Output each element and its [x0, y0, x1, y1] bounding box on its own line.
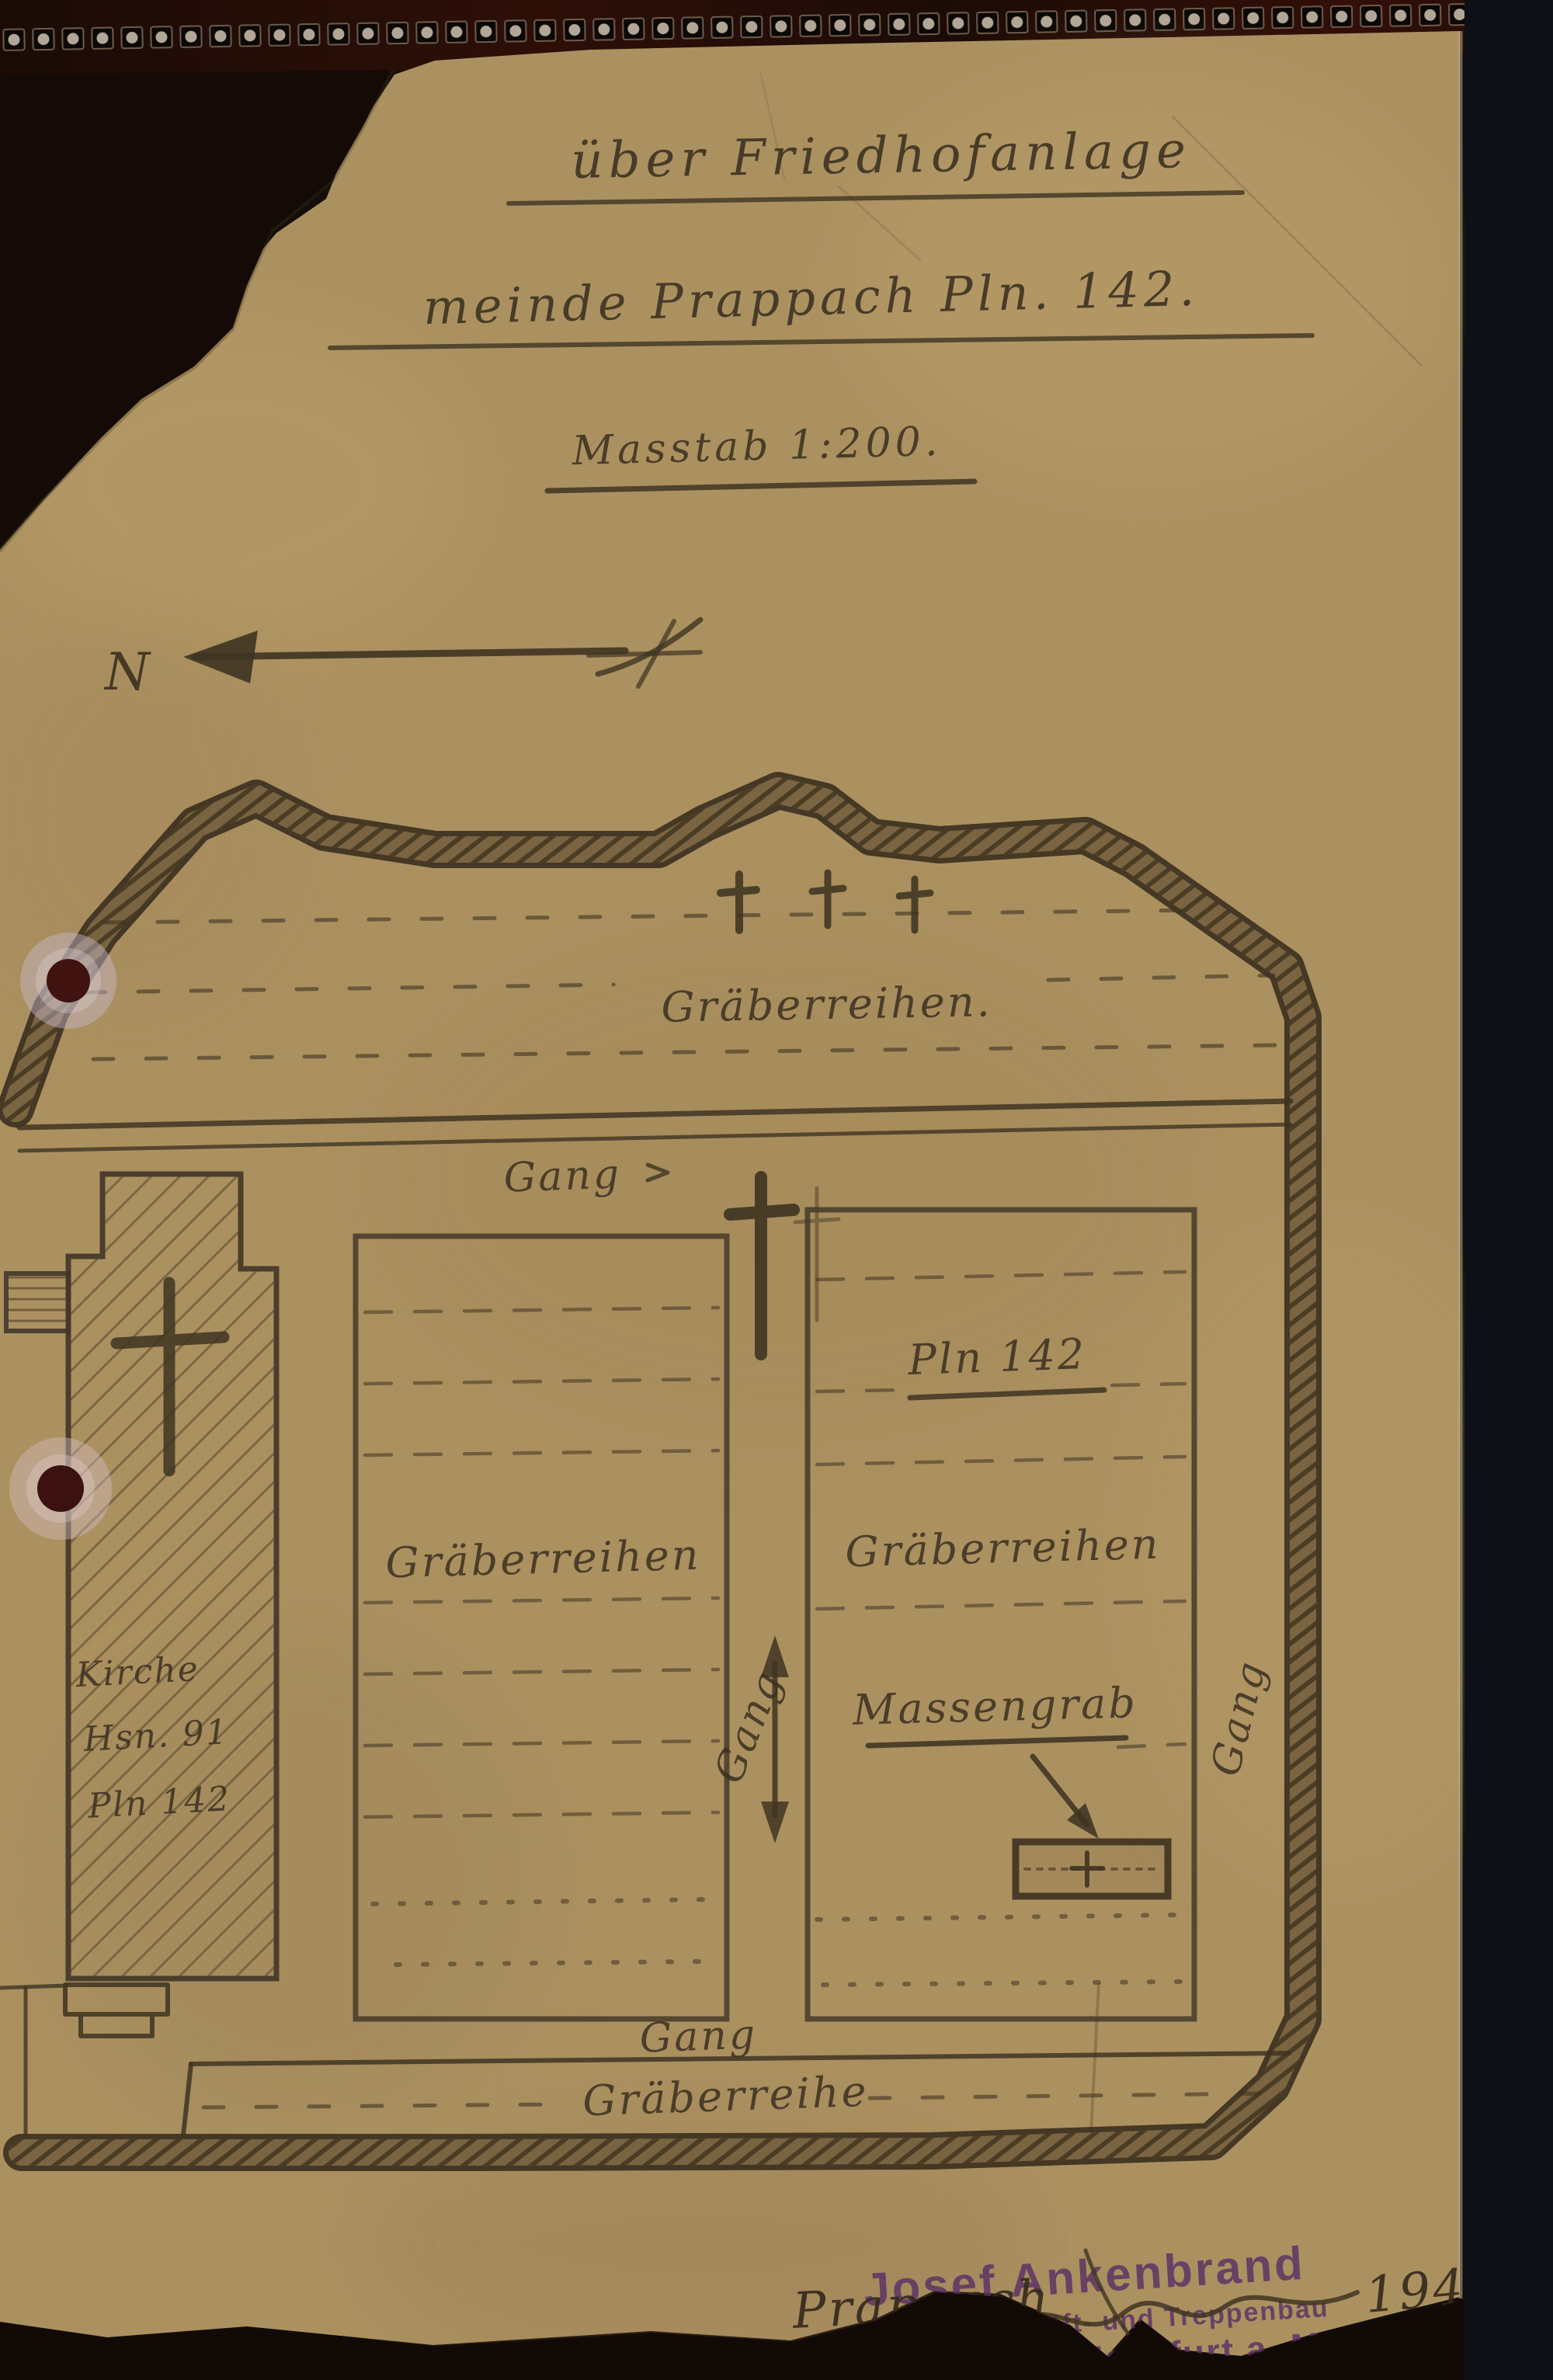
church-plan-no: Pln 142 [86, 1779, 231, 1826]
north-label: N [103, 642, 151, 702]
church-house-no: Hsn. 91 [82, 1712, 230, 1760]
right-block-label: Gräberreihen [845, 1520, 1162, 1577]
scanner-edge-right [1461, 0, 1553, 2380]
north-arrow-feather-2 [589, 652, 700, 655]
gang-bottom-label: Gang [639, 2011, 758, 2062]
church-annex [6, 1273, 68, 1331]
mass-grave-box [1016, 1842, 1168, 1896]
church-name: Kirche [75, 1649, 200, 1695]
scale-line: Masstab 1:200. [571, 419, 942, 474]
gang-top-label: Gang [503, 1151, 622, 1201]
upper-grave-rows-label: Gräberreihen. [661, 977, 992, 1031]
title-line1: über Friedhofanlage [571, 122, 1192, 190]
bottom-row-label: Gräberreihe [582, 2067, 869, 2126]
punch-hole-top [20, 933, 116, 1029]
cemetery-plan-scan: über Friedhofanlage meinde Prappach Pln.… [0, 0, 1553, 2380]
right-block-plan-no: Pln 142 [907, 1329, 1088, 1385]
left-block-label: Gräberreihen [385, 1530, 702, 1588]
mass-grave-label: Massengrab [851, 1678, 1138, 1735]
punch-hole-bottom [9, 1437, 112, 1540]
scanned-document: über Friedhofanlage meinde Prappach Pln.… [0, 0, 1553, 2380]
